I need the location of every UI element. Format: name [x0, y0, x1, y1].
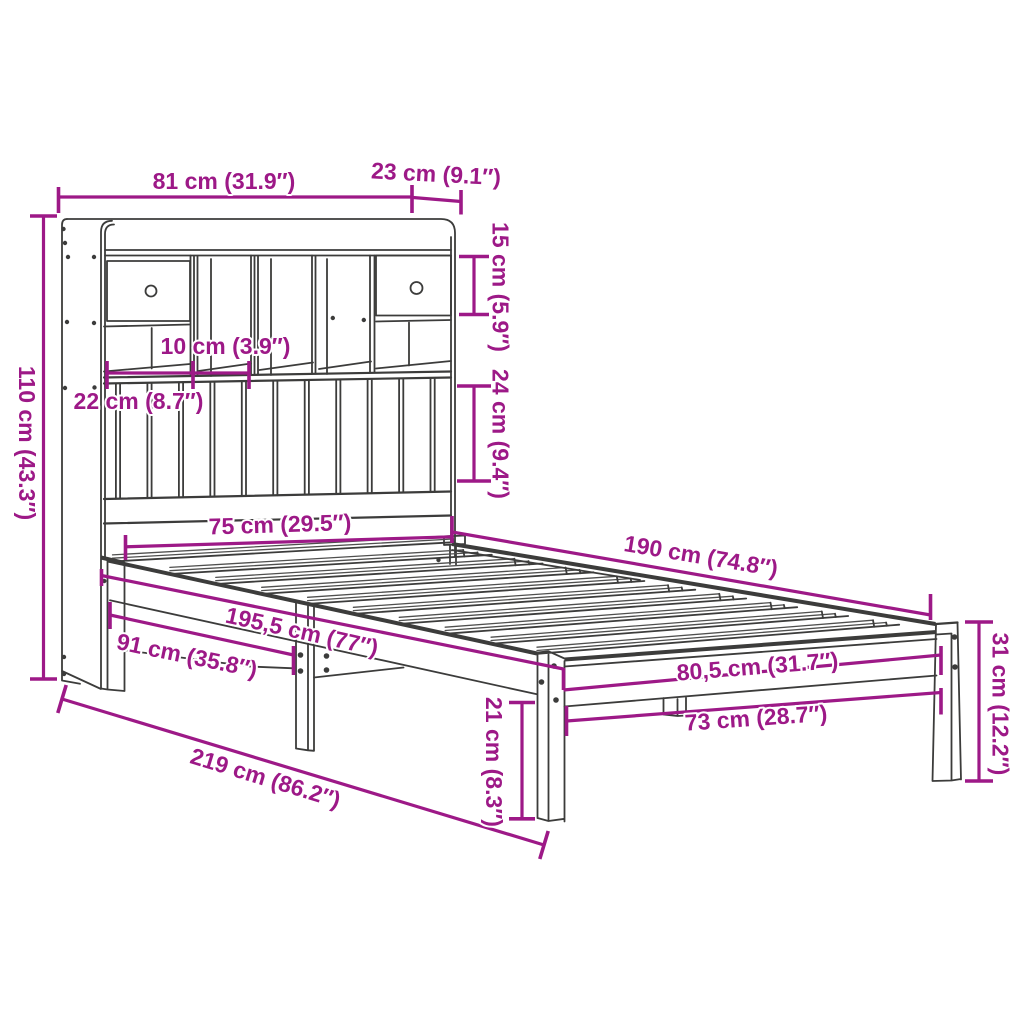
svg-text:15 cm (5.9″): 15 cm (5.9″): [488, 222, 514, 352]
svg-text:22 cm (8.7″): 22 cm (8.7″): [74, 388, 204, 414]
svg-text:75 cm (29.5″): 75 cm (29.5″): [208, 509, 351, 539]
svg-text:10 cm (3.9″): 10 cm (3.9″): [161, 333, 291, 359]
svg-text:21 cm (8.3″): 21 cm (8.3″): [481, 697, 507, 827]
svg-text:31 cm (12.2″): 31 cm (12.2″): [988, 633, 1014, 776]
svg-text:81 cm (31.9″): 81 cm (31.9″): [153, 168, 296, 194]
svg-text:24 cm (9.4″): 24 cm (9.4″): [488, 369, 514, 499]
svg-text:110 cm (43.3″): 110 cm (43.3″): [14, 366, 40, 520]
